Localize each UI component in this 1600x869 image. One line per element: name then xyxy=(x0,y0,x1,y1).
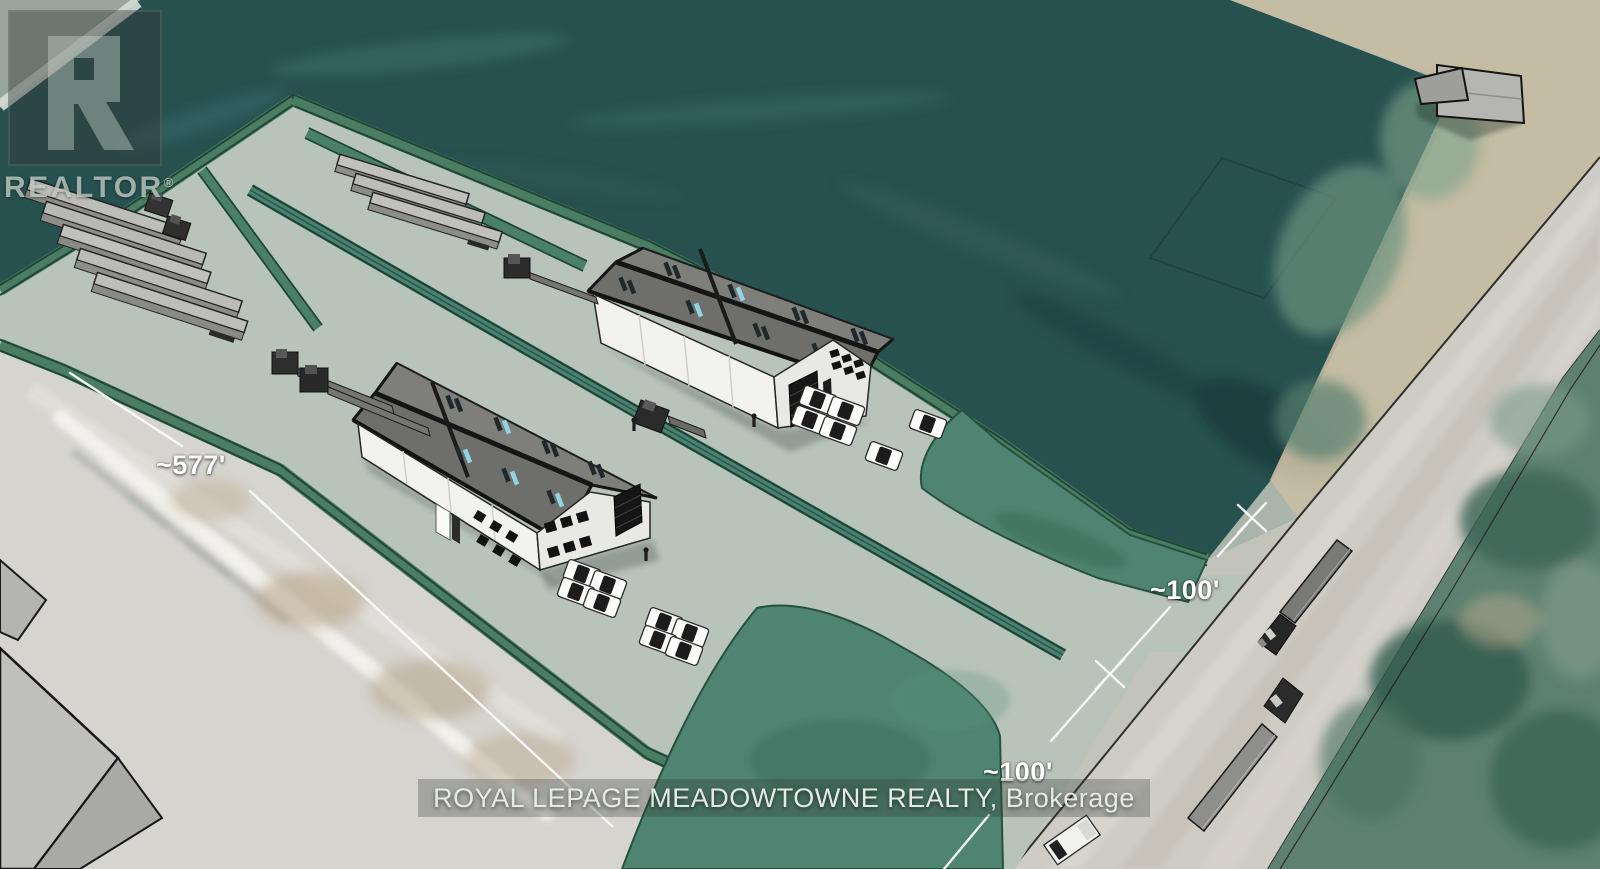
entry-door-dark xyxy=(452,513,460,544)
aerial-scene xyxy=(0,0,1600,869)
site-plan-rendering: REALTOR® ~577' ~100' ~100' ROYAL LEPAGE … xyxy=(0,0,1600,869)
